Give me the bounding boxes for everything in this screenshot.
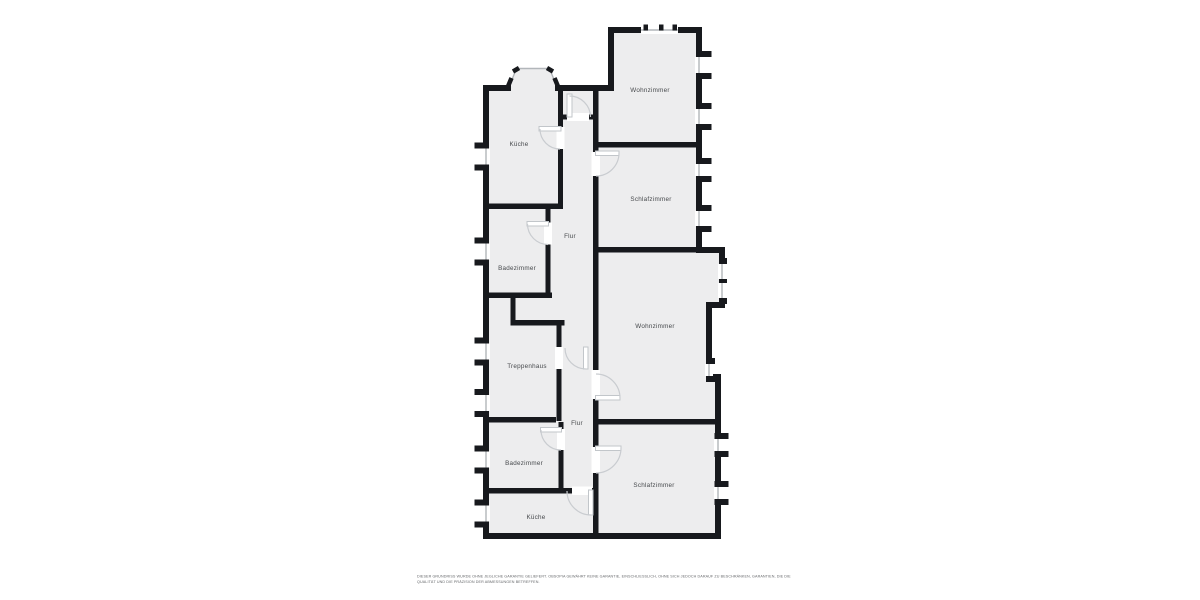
disclaimer-line-2: QUALITÄT UND DIE PRÄZISION DER ABMESSUNG… bbox=[417, 580, 540, 584]
room-label-treppenhaus: Treppenhaus bbox=[507, 363, 547, 370]
disclaimer-line-1: DIESER GRUNDRISS WURDE OHNE JEGLICHE GAR… bbox=[417, 575, 791, 579]
room-label-kueche-top: Küche bbox=[509, 141, 528, 148]
floor-plan: Wohnzimmer Küche Schlafzimmer Flur Badez… bbox=[0, 0, 1200, 600]
floor-plan-canvas: Wohnzimmer Küche Schlafzimmer Flur Badez… bbox=[0, 0, 1200, 600]
disclaimer: DIESER GRUNDRISS WURDE OHNE JEGLICHE GAR… bbox=[417, 575, 791, 585]
room-label-wohnzimmer-top: Wohnzimmer bbox=[630, 87, 669, 94]
room-label-flur-bottom: Flur bbox=[571, 420, 583, 427]
room-label-schlafzimmer-bottom: Schlafzimmer bbox=[633, 482, 674, 489]
room-label-badezimmer-top: Badezimmer bbox=[498, 265, 536, 272]
room-label-kueche-bottom: Küche bbox=[526, 514, 545, 521]
room-label-badezimmer-bottom: Badezimmer bbox=[505, 460, 543, 467]
room-label-wohnzimmer-middle: Wohnzimmer bbox=[635, 323, 674, 330]
room-label-schlafzimmer-top: Schlafzimmer bbox=[630, 196, 671, 203]
room-label-flur-top: Flur bbox=[564, 233, 576, 240]
window-top-wall bbox=[641, 25, 678, 35]
